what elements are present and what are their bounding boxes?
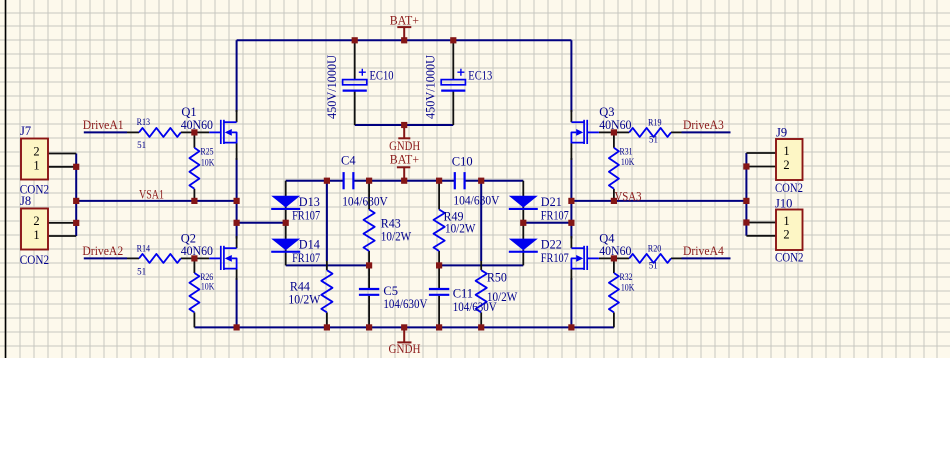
svg-text:J9: J9 xyxy=(776,125,787,139)
svg-text:D13: D13 xyxy=(299,195,320,209)
svg-text:40N60: 40N60 xyxy=(181,244,213,258)
svg-text:DriveA4: DriveA4 xyxy=(683,244,724,258)
svg-text:10/2W: 10/2W xyxy=(381,230,412,244)
svg-text:FR107: FR107 xyxy=(541,251,569,265)
svg-text:1: 1 xyxy=(33,158,39,172)
svg-text:FR107: FR107 xyxy=(541,208,569,222)
svg-text:51: 51 xyxy=(137,267,146,277)
svg-text:10/2W: 10/2W xyxy=(445,222,476,236)
svg-text:J7: J7 xyxy=(20,124,31,138)
svg-text:1: 1 xyxy=(783,144,789,158)
svg-text:51: 51 xyxy=(137,140,146,150)
svg-text:R31: R31 xyxy=(620,146,633,156)
svg-text:DriveA3: DriveA3 xyxy=(683,118,724,132)
svg-text:R13: R13 xyxy=(137,117,151,127)
svg-text:J10: J10 xyxy=(775,196,792,210)
svg-text:BAT+: BAT+ xyxy=(390,153,419,167)
svg-text:R25: R25 xyxy=(201,146,214,156)
svg-text:1: 1 xyxy=(33,228,39,242)
svg-text:DriveA1: DriveA1 xyxy=(83,118,124,132)
svg-text:C11: C11 xyxy=(453,286,473,300)
svg-text:FR107: FR107 xyxy=(292,208,320,222)
svg-text:R14: R14 xyxy=(137,243,151,253)
svg-text:104/630V: 104/630V xyxy=(383,297,427,311)
svg-text:10K: 10K xyxy=(621,157,635,167)
svg-text:D14: D14 xyxy=(299,238,321,252)
svg-text:J8: J8 xyxy=(20,194,31,208)
svg-text:R43: R43 xyxy=(381,216,401,230)
svg-text:450V/1000U: 450V/1000U xyxy=(424,55,438,119)
svg-text:2: 2 xyxy=(33,144,39,158)
svg-text:10K: 10K xyxy=(201,281,215,291)
svg-text:R50: R50 xyxy=(487,271,507,285)
svg-text:EC10: EC10 xyxy=(370,68,394,82)
svg-text:BAT+: BAT+ xyxy=(390,13,419,27)
svg-text:DriveA2: DriveA2 xyxy=(82,244,123,258)
svg-text:450V/1000U: 450V/1000U xyxy=(325,55,339,119)
svg-text:C4: C4 xyxy=(341,154,356,168)
svg-text:FR107: FR107 xyxy=(292,251,320,265)
svg-text:CON2: CON2 xyxy=(775,181,803,195)
svg-text:10/2W: 10/2W xyxy=(288,293,320,307)
svg-text:VSA1: VSA1 xyxy=(139,188,164,202)
svg-text:104/630V: 104/630V xyxy=(453,300,497,314)
svg-text:R20: R20 xyxy=(648,243,662,253)
svg-text:10K: 10K xyxy=(621,282,635,292)
svg-text:51: 51 xyxy=(649,135,658,145)
svg-text:C5: C5 xyxy=(383,284,398,298)
svg-text:GNDH: GNDH xyxy=(389,342,421,356)
svg-text:CON2: CON2 xyxy=(20,253,49,267)
svg-text:40N60: 40N60 xyxy=(599,244,631,258)
svg-text:D22: D22 xyxy=(541,238,562,252)
svg-text:D21: D21 xyxy=(541,195,562,209)
svg-text:VSA3: VSA3 xyxy=(615,189,642,203)
svg-text:GNDH: GNDH xyxy=(389,139,420,153)
svg-text:R19: R19 xyxy=(648,117,662,127)
svg-text:40N60: 40N60 xyxy=(599,118,631,132)
svg-text:2: 2 xyxy=(33,214,39,228)
svg-text:1: 1 xyxy=(783,214,789,228)
svg-text:R44: R44 xyxy=(290,279,311,293)
svg-text:104/630V: 104/630V xyxy=(453,193,499,207)
svg-text:104/630V: 104/630V xyxy=(342,194,388,208)
svg-text:51: 51 xyxy=(649,261,658,271)
svg-text:C10: C10 xyxy=(452,155,473,169)
svg-text:2: 2 xyxy=(783,227,789,241)
svg-text:40N60: 40N60 xyxy=(181,118,213,132)
svg-text:R32: R32 xyxy=(620,272,633,282)
svg-text:2: 2 xyxy=(783,158,789,172)
svg-text:CON2: CON2 xyxy=(775,250,804,264)
svg-text:EC13: EC13 xyxy=(468,68,492,82)
svg-text:10K: 10K xyxy=(201,157,215,167)
